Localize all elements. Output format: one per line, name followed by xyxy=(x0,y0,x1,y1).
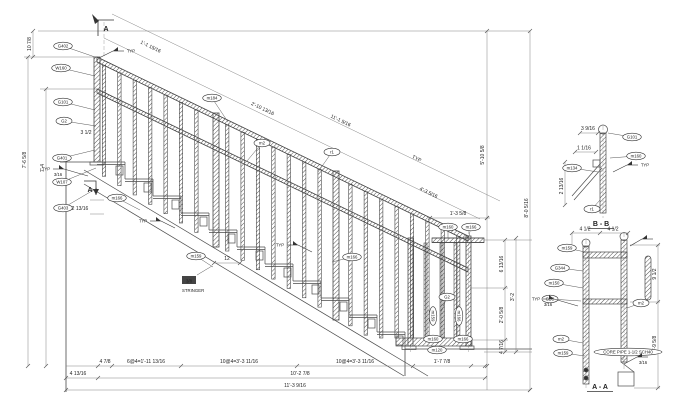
callout-label: m159 xyxy=(430,311,435,322)
callout-bubble: m159 xyxy=(429,307,437,326)
callout-bubble: G402 xyxy=(54,42,95,57)
callout-label: m184 xyxy=(207,96,218,101)
dim-slope-seg1: 1'-1 15/16 xyxy=(139,40,162,55)
stringer-label: 3/8 STRINGER xyxy=(182,266,212,293)
callout-bubble: G2 xyxy=(56,117,96,126)
callout-label: G344 xyxy=(555,266,566,271)
weld-size-label: 3/16 xyxy=(544,302,553,307)
weld-typ-label: TYP xyxy=(641,163,649,168)
section-bb xyxy=(572,125,608,218)
dim-slope-seg2: 2'-10 13/16 xyxy=(250,101,275,117)
dim-right-small1: 6 13/16 xyxy=(499,255,505,272)
callout-label: G402 xyxy=(58,44,69,49)
callout-label: m166 xyxy=(347,255,358,260)
dim-right-mid: 3'-2 xyxy=(510,293,516,301)
callout-label: m160 xyxy=(428,337,439,342)
callout-bubble: G401 xyxy=(53,150,95,162)
bb-dim1: 3 9/16 xyxy=(581,126,595,132)
dim-chain4: 10@4=3'-3 11/16 xyxy=(336,359,374,365)
dim-bottom-left: 4 13/16 xyxy=(70,371,87,377)
callout-label: r1 xyxy=(330,150,334,155)
dim-left-height1: 7'-6 5/8 xyxy=(22,152,28,169)
dim-slope-seg3: 4'-3 5/16 xyxy=(418,186,438,200)
callout-label: r1 xyxy=(590,207,594,212)
callout-bubble: G101 xyxy=(608,133,641,141)
dim-left-small1: 3 1/2 xyxy=(80,130,91,136)
bb-dim3: 2 13/16 xyxy=(559,177,565,194)
dim-left-small2: 2 13/16 xyxy=(72,206,89,212)
callout-bubble: m150 xyxy=(545,279,583,288)
weld-symbol: TYP3/16 xyxy=(42,165,88,177)
callout-label: G401 xyxy=(57,156,68,161)
section-titles: B - B A - A xyxy=(592,221,609,391)
section-aa-title: A - A xyxy=(592,384,608,391)
callout-label: G2 xyxy=(444,295,450,300)
callout-label: m159 xyxy=(562,246,573,251)
dim-right-height1: 5'-10 5/8 xyxy=(480,145,486,165)
weld-typ-label: TYP xyxy=(42,167,50,172)
dim-chain3: 10@4=3'-3 11/16 xyxy=(220,359,258,365)
balusters-and-posts xyxy=(94,57,471,346)
section-aa xyxy=(582,233,651,391)
aa-dim1: 4 1/2 xyxy=(579,227,590,233)
stringer-plate-label: 3/8 xyxy=(186,279,193,284)
dim-bottom-total1: 10'-2 7/8 xyxy=(290,371,310,377)
callout-bubble: m159 xyxy=(558,244,585,252)
dim-top-offset: 10 7/8 xyxy=(27,37,33,51)
callout-bubble: m120 xyxy=(428,346,447,354)
callout-label: m159 xyxy=(558,351,569,356)
callout-label: G403 xyxy=(58,206,69,211)
callout-label: W160 xyxy=(55,66,67,71)
callout-label: m120 xyxy=(432,348,443,353)
callout-bubble: m166 xyxy=(455,307,463,326)
dim-chain2: 6@4=1'-11 13/16 xyxy=(127,359,165,365)
callout-label: m160 xyxy=(443,225,454,230)
callout-label: m2 xyxy=(638,301,645,306)
callout-bubble: r1 xyxy=(584,200,600,213)
callout-label: m134 xyxy=(567,166,578,171)
callout-label: m150 xyxy=(549,281,560,286)
weld-size-label: 3/16 xyxy=(639,360,648,365)
weld-symbol: TYP xyxy=(613,161,649,172)
callout-bubble: m2 xyxy=(627,299,649,308)
weld-symbol: TYP xyxy=(99,47,135,58)
callout-label: G101 xyxy=(627,135,638,140)
weld-typ-label: TYP xyxy=(139,219,147,224)
aa-dim3: 9 1/2 xyxy=(652,268,658,279)
dim-tread: 12 xyxy=(224,256,230,262)
callout-bubble: G344 xyxy=(551,264,583,272)
callout-label: m2 xyxy=(259,141,266,146)
callout-label: G101 xyxy=(58,100,69,105)
stair-railing-drawing: 10 7/8 7'-6 5/8 7'-4 3 1/2 2 13/16 1'-1 … xyxy=(0,0,684,400)
dim-chain5: 1'-7 7/8 xyxy=(434,359,451,365)
callout-label: CORE PIPE 1-1/2 SCH40 xyxy=(603,350,653,355)
weld-symbol xyxy=(630,235,653,246)
callout-bubble: m2 xyxy=(553,335,583,343)
stringer-text: STRINGER xyxy=(182,288,204,293)
callout-bubble: m160 xyxy=(424,335,443,343)
dim-chain1: 4 7/8 xyxy=(99,359,110,365)
dim-bottom-total2: 11'-3 9/16 xyxy=(284,383,306,389)
weld-typ-label: TYP xyxy=(532,297,540,302)
callout-bubble: m159 xyxy=(554,349,585,357)
callout-bubble: G101 xyxy=(54,98,95,110)
cut-marker-a-top: A xyxy=(103,26,108,33)
callout-bubble: m159 xyxy=(187,252,213,267)
weld-symbol: TYP xyxy=(139,217,175,228)
top-rail xyxy=(97,57,468,241)
callout-label: m2 xyxy=(558,337,565,342)
aa-dim2: 4 1/2 xyxy=(607,227,618,233)
dim-right-small2: 2'-0 5/8 xyxy=(499,307,505,324)
callout-label: G2 xyxy=(61,119,67,124)
callout-label: m166 xyxy=(456,311,461,322)
dim-right-top: 1'-3 5/8 xyxy=(450,211,467,217)
weld-typ-label: TYP xyxy=(127,49,135,54)
base-plates xyxy=(90,162,474,350)
bb-dim2: 1 1/16 xyxy=(577,146,591,152)
callout-label: m166 xyxy=(112,196,123,201)
callout-bubble: CORE PIPE 1-1/2 SCH40 xyxy=(594,348,662,360)
callout-label: W107 xyxy=(56,180,68,185)
callout-label: m166 xyxy=(466,225,477,230)
weld-size-label: 3/16 xyxy=(54,172,63,177)
callout-bubble: m166 xyxy=(454,335,473,343)
dim-right-small3: 4 7/16 xyxy=(499,340,505,354)
callout-label: m160 xyxy=(631,154,642,159)
callout-label: m159 xyxy=(191,254,202,259)
callouts: G402W160G101G2G401W107G403m184m2r1m166m1… xyxy=(52,42,662,360)
dim-slope-total1: 11'-1 5/16 xyxy=(329,114,351,129)
callout-bubble: m160 xyxy=(610,152,645,160)
dim-right-height2: 8'-0 5/16 xyxy=(524,198,530,218)
callout-label: m166 xyxy=(458,337,469,342)
callout-bubble: W160 xyxy=(52,64,95,76)
floor-lines xyxy=(60,162,532,392)
weld-typ-label: TYP xyxy=(276,243,284,248)
weld-symbol: TYP xyxy=(276,241,312,252)
